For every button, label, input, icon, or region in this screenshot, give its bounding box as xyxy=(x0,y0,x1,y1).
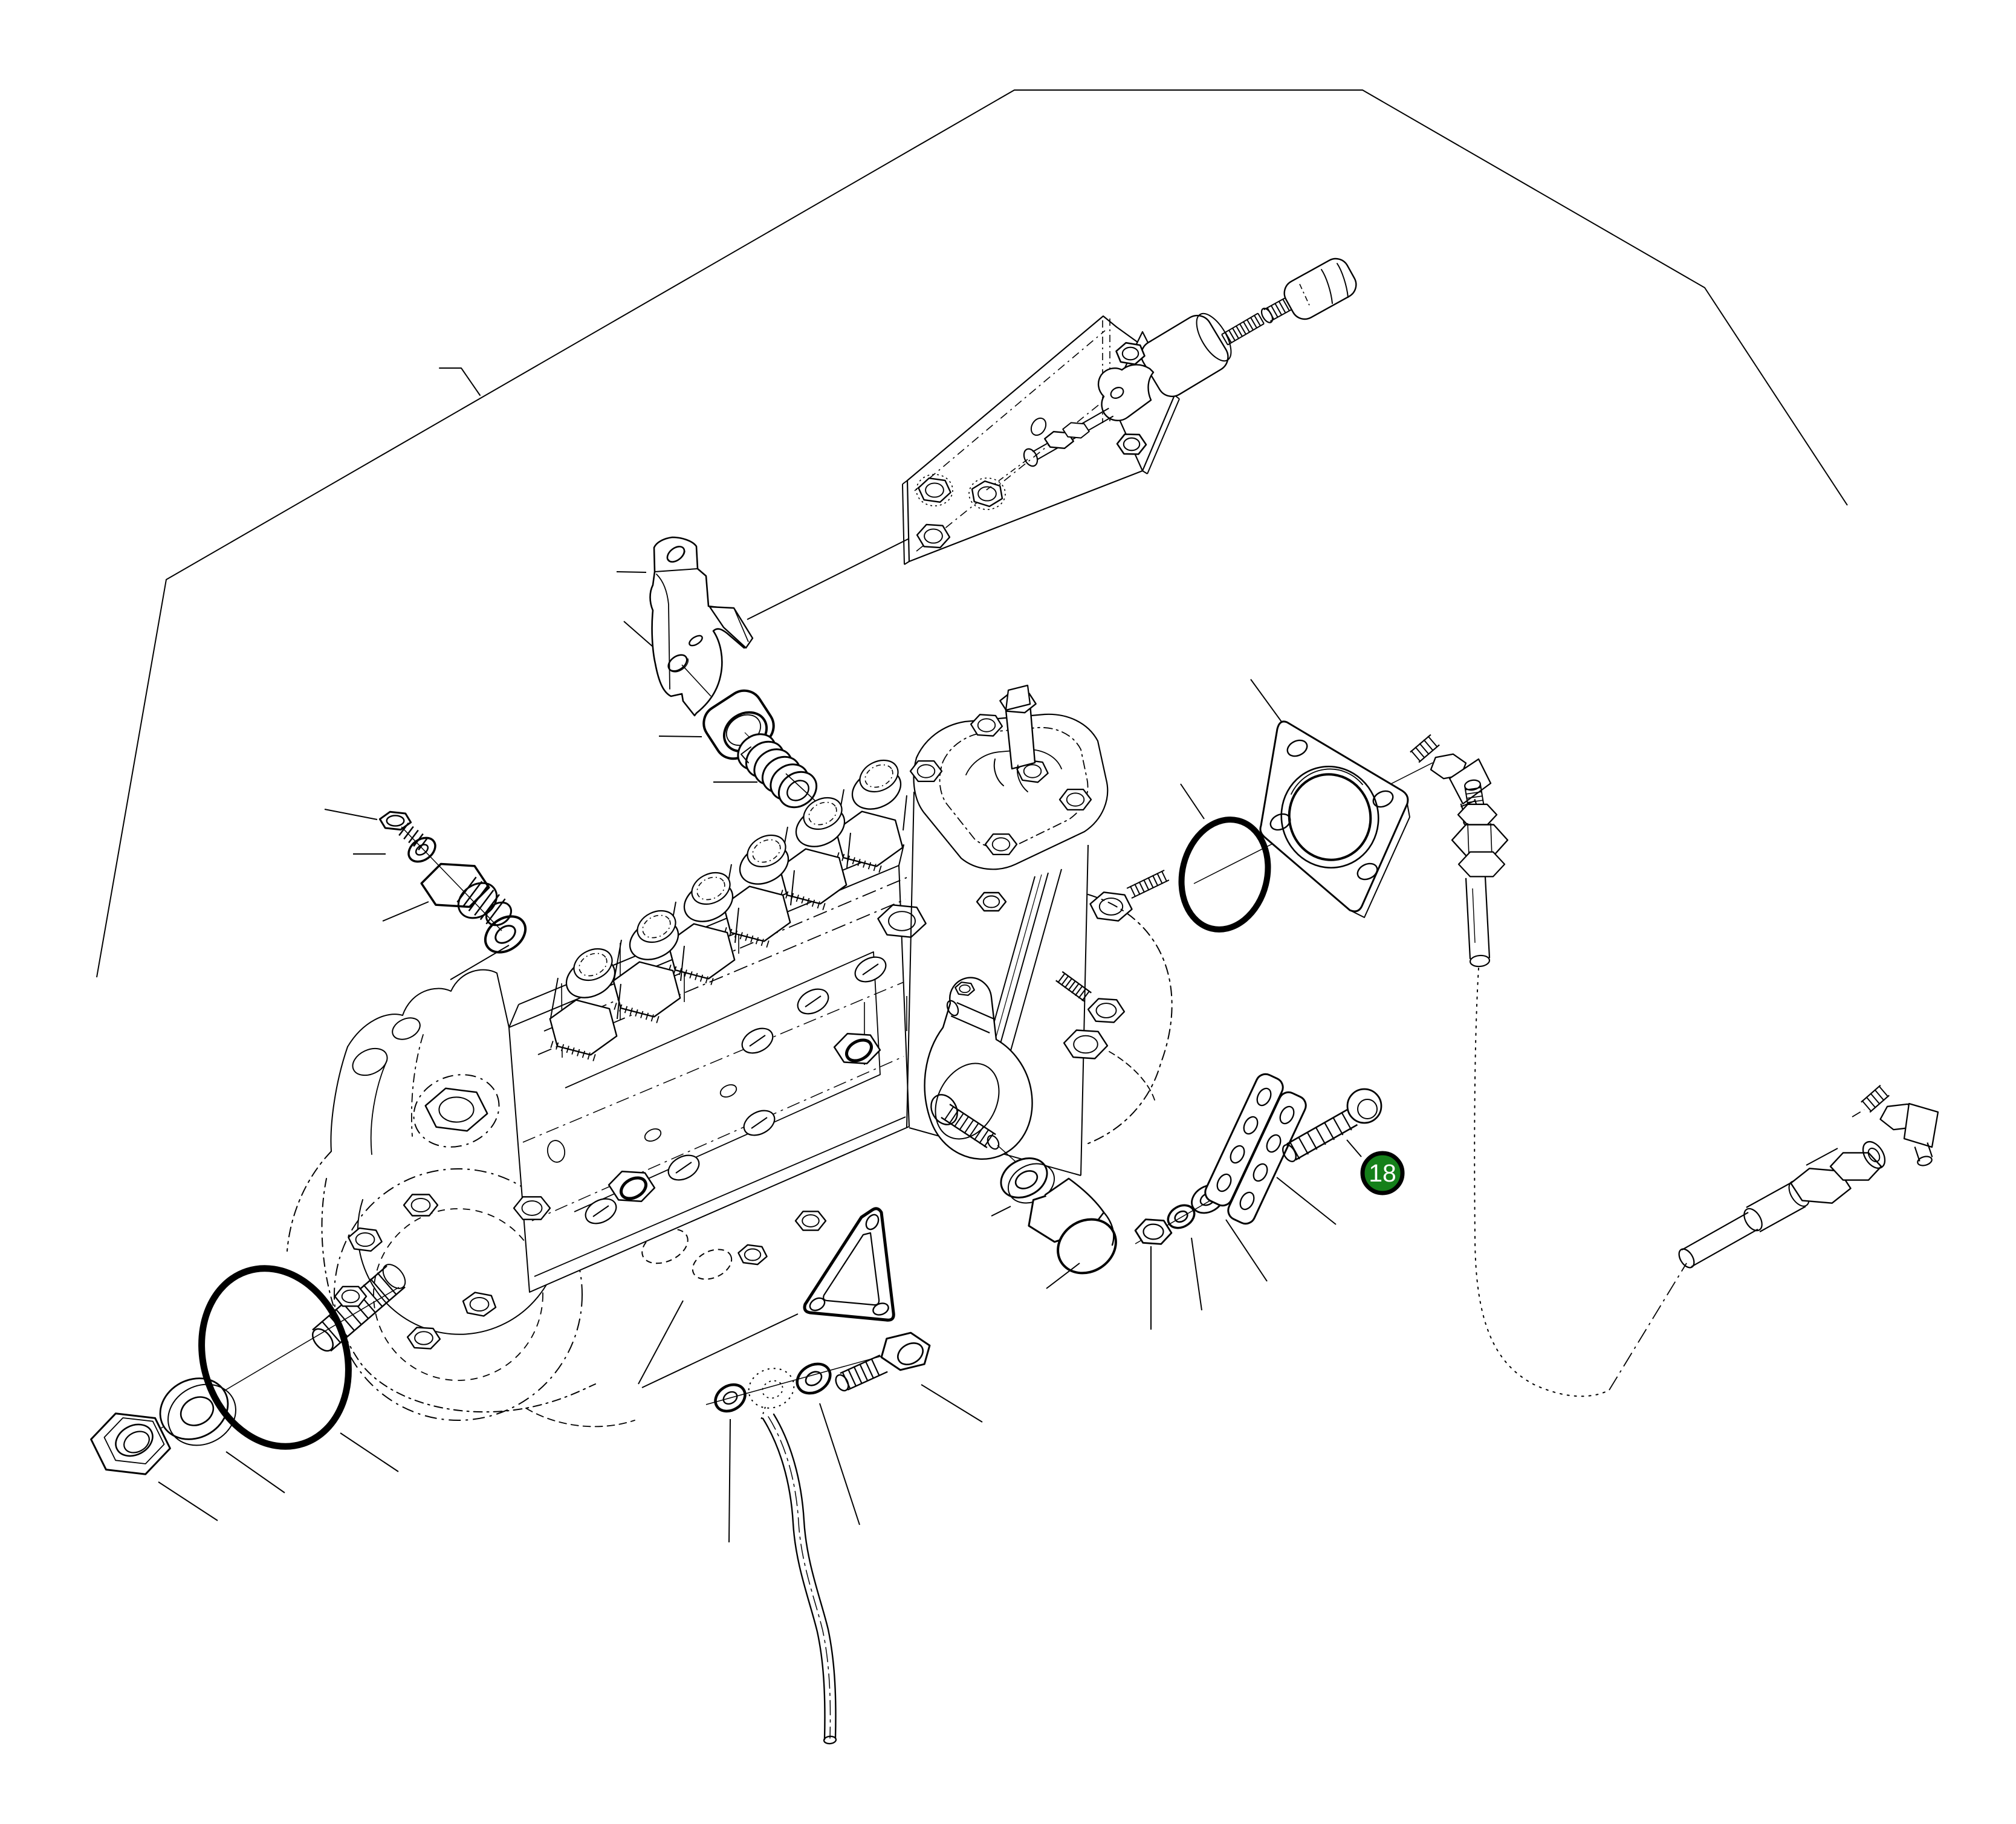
svg-text:18: 18 xyxy=(1369,1159,1396,1187)
